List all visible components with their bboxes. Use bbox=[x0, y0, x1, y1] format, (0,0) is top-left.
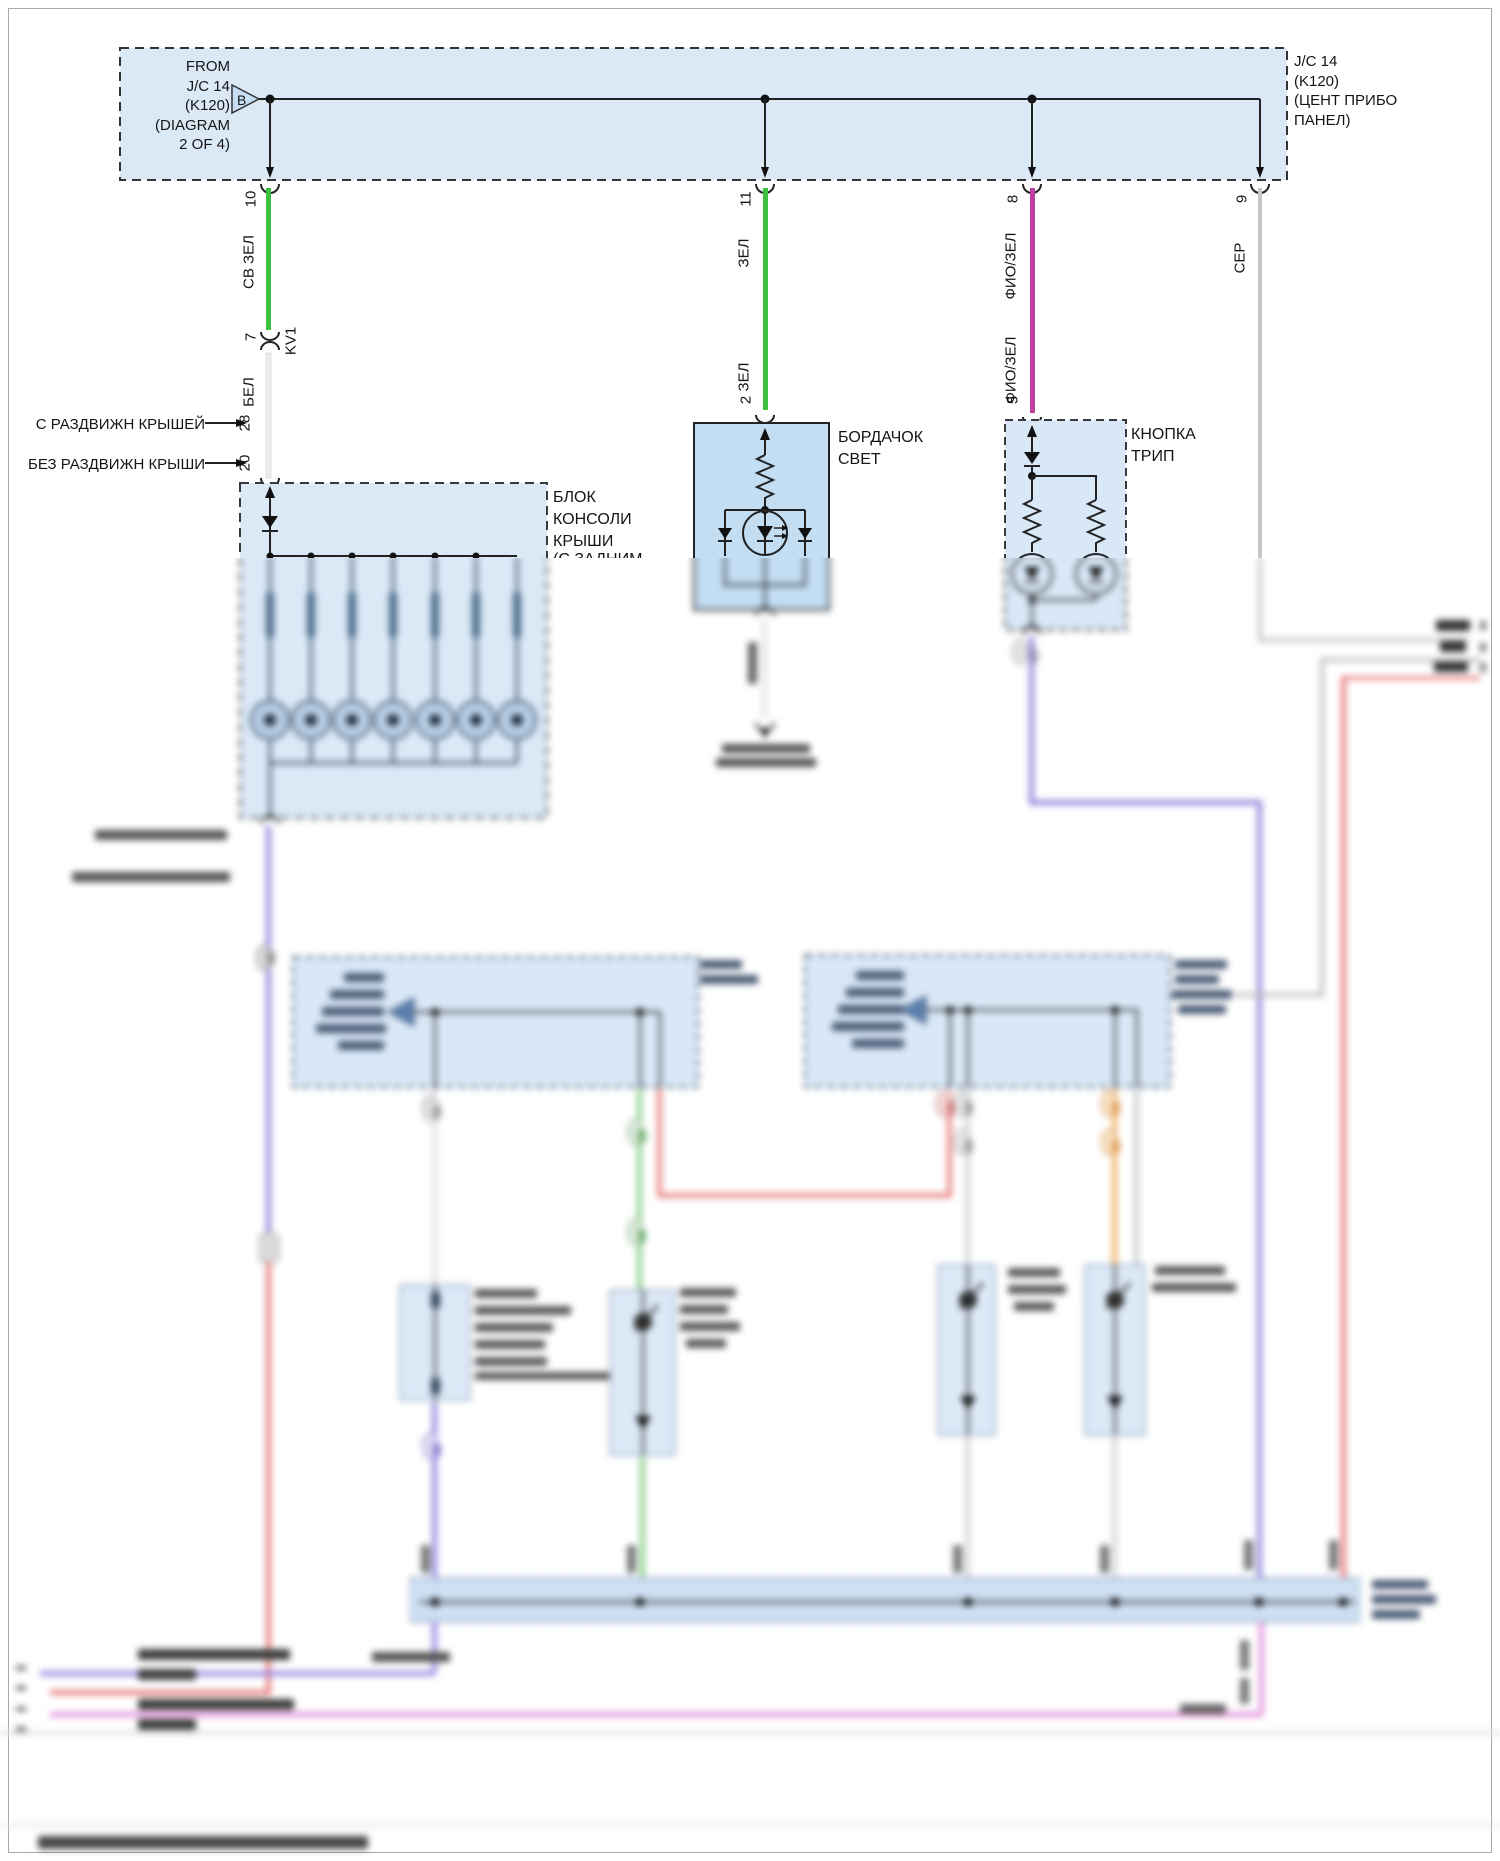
junction-connector-box bbox=[120, 48, 1287, 180]
sharp-top-region: FROM J/C 14 (K120) (DIAGRAM 2 OF 4) B J/… bbox=[0, 0, 1500, 558]
component-box-2 bbox=[610, 1288, 740, 1578]
wire-fiozel bbox=[1023, 188, 1041, 425]
pin-10-label: 10 bbox=[243, 191, 260, 208]
roof-console-box-lower bbox=[240, 558, 547, 818]
pin-20-label: 20 bbox=[237, 455, 254, 472]
option-without-sunroof-label: БЕЗ РАЗДВИЖН КРЫШИ bbox=[0, 455, 205, 475]
left-purple-red-wire bbox=[50, 816, 279, 1695]
footer bbox=[0, 1824, 1500, 1849]
roof-console-box bbox=[240, 483, 547, 558]
triangle-letter: B bbox=[237, 91, 246, 109]
wire-tags-above-bus bbox=[421, 1540, 1338, 1573]
kv1-connector-label: KV1 bbox=[283, 327, 300, 355]
wire-zel bbox=[756, 188, 774, 423]
component-box-4 bbox=[1085, 1265, 1236, 1578]
glovebox-box-lower bbox=[694, 558, 829, 767]
wire-color-zel-lower-label: ЗЕЛ bbox=[736, 363, 753, 392]
jc-name-label: J/C 14 (K120) (ЦЕНТ ПРИБО ПАНЕЛ) bbox=[1294, 52, 1397, 130]
wire-color-fiozel-lower-label: ФИО/ЗЕЛ bbox=[1003, 337, 1020, 404]
wire-color-svzel-label: СВ ЗЕЛ bbox=[241, 235, 258, 289]
right-gray-red-wires bbox=[1235, 558, 1486, 1580]
wire-color-fiozel-upper-label: ФИО/ЗЕЛ bbox=[1003, 233, 1020, 300]
blurred-note-line-2 bbox=[72, 872, 230, 882]
glovebox-light-label: БОРДАЧОК СВЕТ bbox=[838, 427, 923, 471]
wire-ser bbox=[1258, 188, 1262, 558]
from-jc-label: FROM J/C 14 (K120) (DIAGRAM 2 OF 4) bbox=[126, 57, 230, 155]
component-box-3 bbox=[938, 1265, 1066, 1578]
pin-2-label: 2 bbox=[738, 396, 755, 404]
blurred-lower-region bbox=[0, 558, 1500, 1861]
wire-color-ser-label: СЕР bbox=[1232, 243, 1249, 274]
wire-color-zel-upper-label: ЗЕЛ bbox=[736, 239, 753, 268]
wiring-diagram-page: FROM J/C 14 (K120) (DIAGRAM 2 OF 4) B J/… bbox=[0, 0, 1500, 1861]
pin-5-label: 5 bbox=[1005, 396, 1022, 404]
trip-button-box bbox=[1005, 420, 1126, 558]
middle-left-module-box bbox=[293, 957, 758, 1087]
pin-7-label: 7 bbox=[243, 333, 260, 341]
pin-8-label: 8 bbox=[1005, 195, 1022, 203]
roof-console-sub-label: (С ЗАДНИМ bbox=[553, 549, 642, 558]
wire-color-bel-label: БЕЛ bbox=[241, 377, 258, 407]
blurred-schematic-graphics bbox=[0, 558, 1500, 1861]
pin-28-label: 28 bbox=[237, 415, 254, 432]
glovebox-light-box bbox=[694, 423, 829, 558]
option-with-sunroof-label: С РАЗДВИЖН КРЫШЕЙ bbox=[0, 415, 205, 435]
bottom-rails bbox=[0, 1622, 1500, 1735]
blurred-note-line-1 bbox=[95, 830, 227, 840]
middle-right-drops bbox=[954, 1089, 1139, 1265]
component-box-1 bbox=[400, 1285, 633, 1578]
middle-left-drops bbox=[422, 1089, 955, 1290]
pin-9-label: 9 bbox=[1234, 195, 1251, 203]
middle-right-module-box bbox=[805, 955, 1232, 1087]
pin-11-label: 11 bbox=[738, 191, 755, 207]
roof-console-label: БЛОК КОНСОЛИ КРЫШИ bbox=[553, 487, 632, 553]
trip-button-label: КНОПКА ТРИП bbox=[1131, 424, 1196, 468]
bottom-bus-bar bbox=[410, 1578, 1436, 1622]
